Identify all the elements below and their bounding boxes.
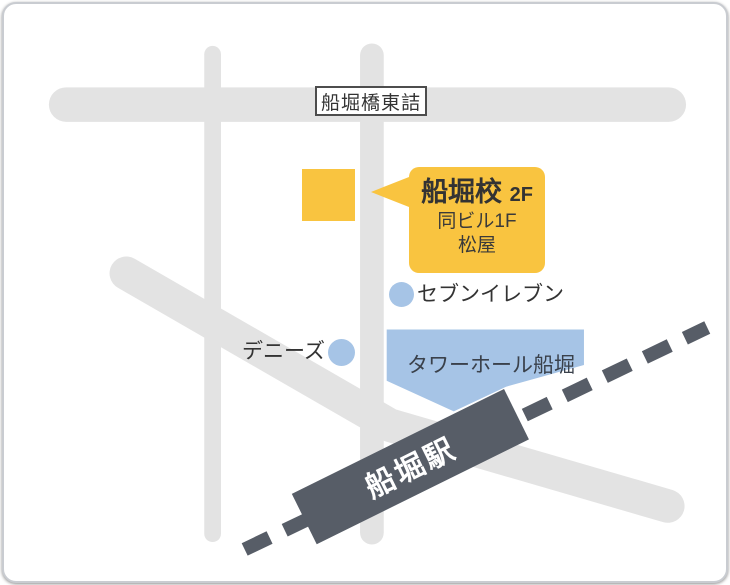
school-callout-title: 船堀校 2F (421, 177, 533, 210)
school-building-marker (302, 169, 355, 221)
map-card: 船堀駅 船堀橋東詰 船堀校 2F 同ビル1F 松屋 セブンイレブン デニーズ タ… (2, 2, 728, 583)
road-sign-label: 船堀橋東詰 (321, 88, 421, 115)
school-floor: 2F (510, 184, 533, 206)
dennys-dot (328, 339, 355, 366)
seven-eleven-label: セブンイレブン (417, 282, 564, 307)
school-callout-line2: 同ビル1F (437, 210, 516, 234)
seven-eleven-dot (389, 282, 414, 307)
dennys-label: デニーズ (242, 339, 325, 364)
school-name: 船堀校 (421, 177, 502, 207)
school-callout: 船堀校 2F 同ビル1F 松屋 (409, 167, 545, 273)
callout-pointer (371, 177, 409, 207)
school-callout-line3: 松屋 (458, 234, 496, 258)
tower-hall-label: タワーホール船堀 (399, 349, 583, 379)
road-sign: 船堀橋東詰 (315, 86, 427, 116)
